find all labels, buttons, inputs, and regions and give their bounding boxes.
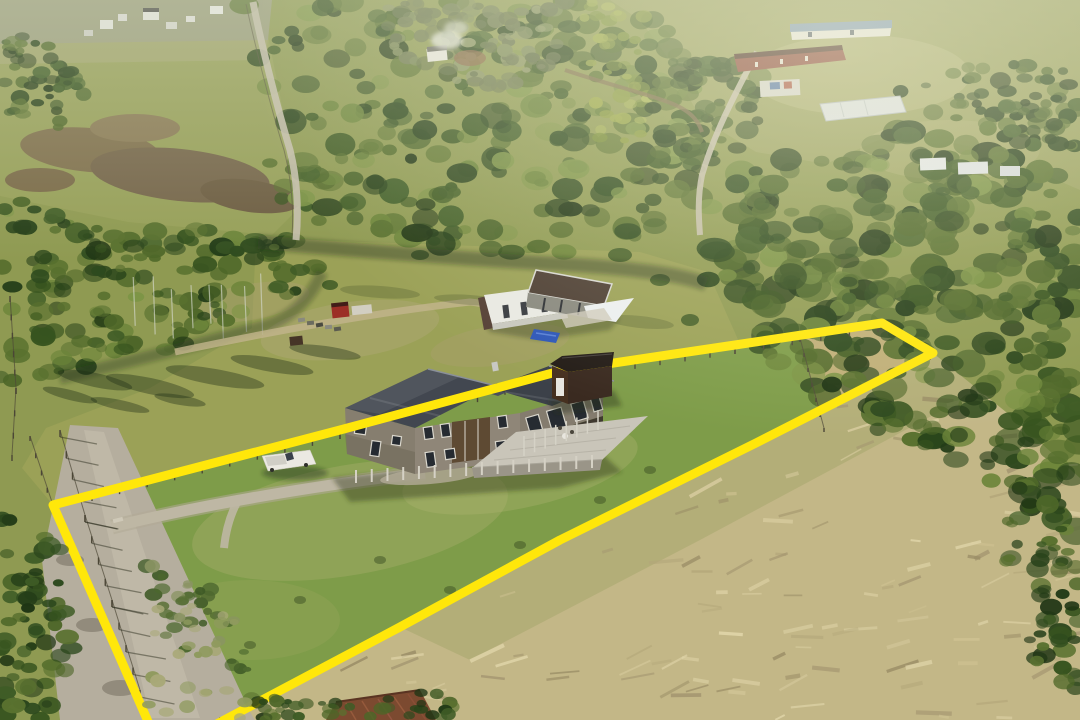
aerial-photo-canvas	[0, 0, 1080, 720]
sun-glare	[0, 0, 1080, 720]
aerial-photo	[0, 0, 1080, 720]
